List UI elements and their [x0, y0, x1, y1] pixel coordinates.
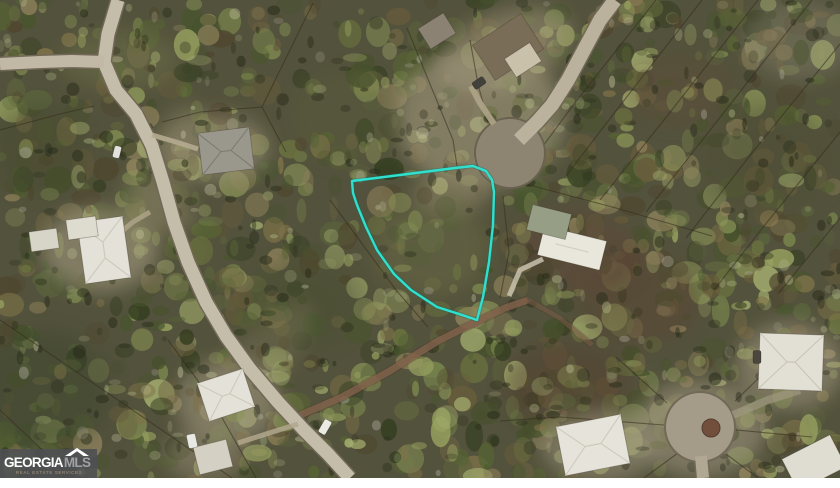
brand-mls: MLS [64, 456, 90, 470]
georgia-mls-watermark: GEORGIAMLS REAL ESTATE SERVICES [0, 449, 97, 478]
brand-georgia: GEORGIA [4, 456, 63, 470]
aerial-photo-canvas [0, 0, 840, 478]
brand-tagline: REAL ESTATE SERVICES [4, 471, 94, 476]
image-bottom-margin [0, 478, 840, 488]
brand-row: GEORGIAMLS [4, 456, 94, 470]
aerial-photo [0, 0, 840, 478]
photo-tint [0, 0, 840, 478]
roof-icon [65, 448, 89, 456]
listing-photo-screenshot: GEORGIAMLS REAL ESTATE SERVICES [0, 0, 840, 488]
